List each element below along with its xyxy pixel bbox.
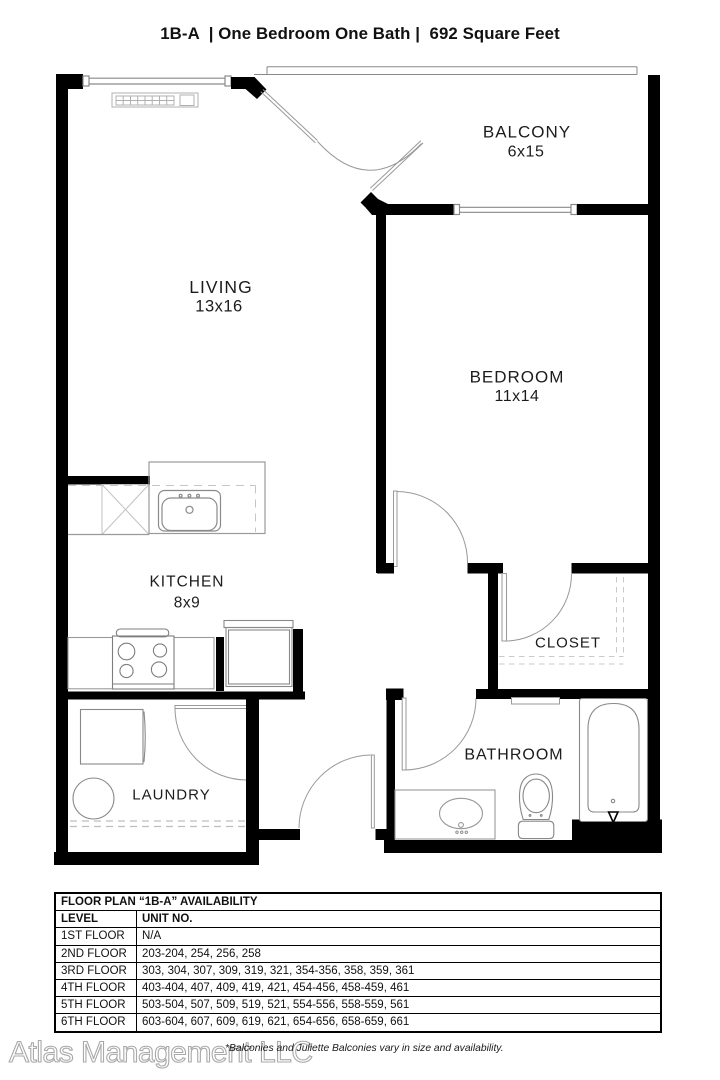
svg-text:BALCONY: BALCONY — [483, 123, 571, 142]
svg-text:11x14: 11x14 — [495, 388, 540, 405]
svg-text:BEDROOM: BEDROOM — [470, 368, 565, 387]
svg-text:8x9: 8x9 — [174, 595, 201, 612]
svg-text:13x16: 13x16 — [195, 298, 242, 316]
svg-text:LAUNDRY: LAUNDRY — [132, 787, 210, 804]
svg-text:CLOSET: CLOSET — [535, 635, 601, 652]
svg-text:BATHROOM: BATHROOM — [464, 747, 563, 764]
svg-text:6x15: 6x15 — [508, 144, 545, 161]
svg-text:KITCHEN: KITCHEN — [149, 574, 224, 591]
svg-text:LIVING: LIVING — [189, 277, 252, 297]
